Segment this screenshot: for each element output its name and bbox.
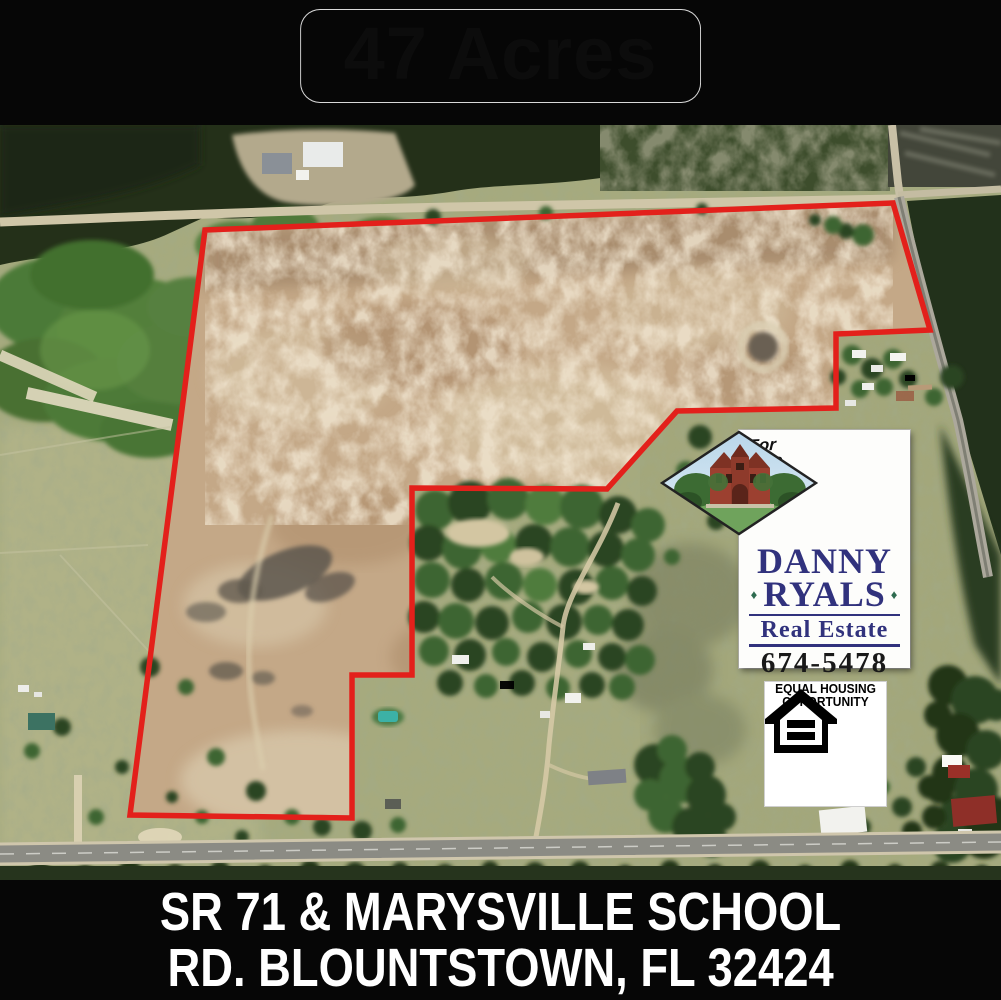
broker-last-name: RYALS bbox=[763, 578, 885, 611]
phone-number: 674-5478 bbox=[739, 649, 910, 678]
for-sale-sign: For Sale bbox=[739, 430, 910, 668]
house-illustration bbox=[660, 430, 818, 536]
equal-housing-text-2: OPPORTUNITY bbox=[770, 695, 881, 708]
shed-roof bbox=[296, 170, 309, 180]
red-roof-house bbox=[951, 795, 997, 827]
barn-roof bbox=[262, 153, 292, 174]
listing-flyer: 47 Acres bbox=[0, 0, 1001, 1000]
gray-barn-roof bbox=[588, 769, 627, 786]
red-roof-small bbox=[948, 765, 970, 778]
diamond-bullet-icon: ♦ bbox=[751, 588, 759, 601]
house-roof bbox=[303, 142, 343, 167]
diamond-bullet-icon: ♦ bbox=[891, 588, 899, 601]
top-banner: 47 Acres bbox=[0, 0, 1001, 125]
address-line-2: RD. BLOUNTSTOWN, FL 32424 bbox=[167, 941, 833, 995]
address-bar: SR 71 & MARYSVILLE SCHOOL RD. BLOUNTSTOW… bbox=[0, 880, 1001, 1000]
company-name: Real Estate bbox=[739, 618, 910, 642]
address-line-1: SR 71 & MARYSVILLE SCHOOL bbox=[160, 885, 841, 939]
acreage-text: 47 Acres bbox=[344, 17, 658, 91]
dark-roof-shed bbox=[385, 799, 401, 809]
aerial-photo: For Sale bbox=[0, 125, 1001, 880]
swimming-pool bbox=[378, 711, 398, 722]
broker-last-name-row: ♦ RYALS ♦ bbox=[739, 578, 910, 611]
acreage-badge: 47 Acres bbox=[300, 9, 702, 103]
sign-divider bbox=[749, 614, 900, 616]
green-roof-building bbox=[28, 713, 55, 730]
white-roof-building bbox=[819, 806, 867, 837]
equal-housing-logo: EQUAL HOUSING OPPORTUNITY bbox=[765, 682, 886, 806]
